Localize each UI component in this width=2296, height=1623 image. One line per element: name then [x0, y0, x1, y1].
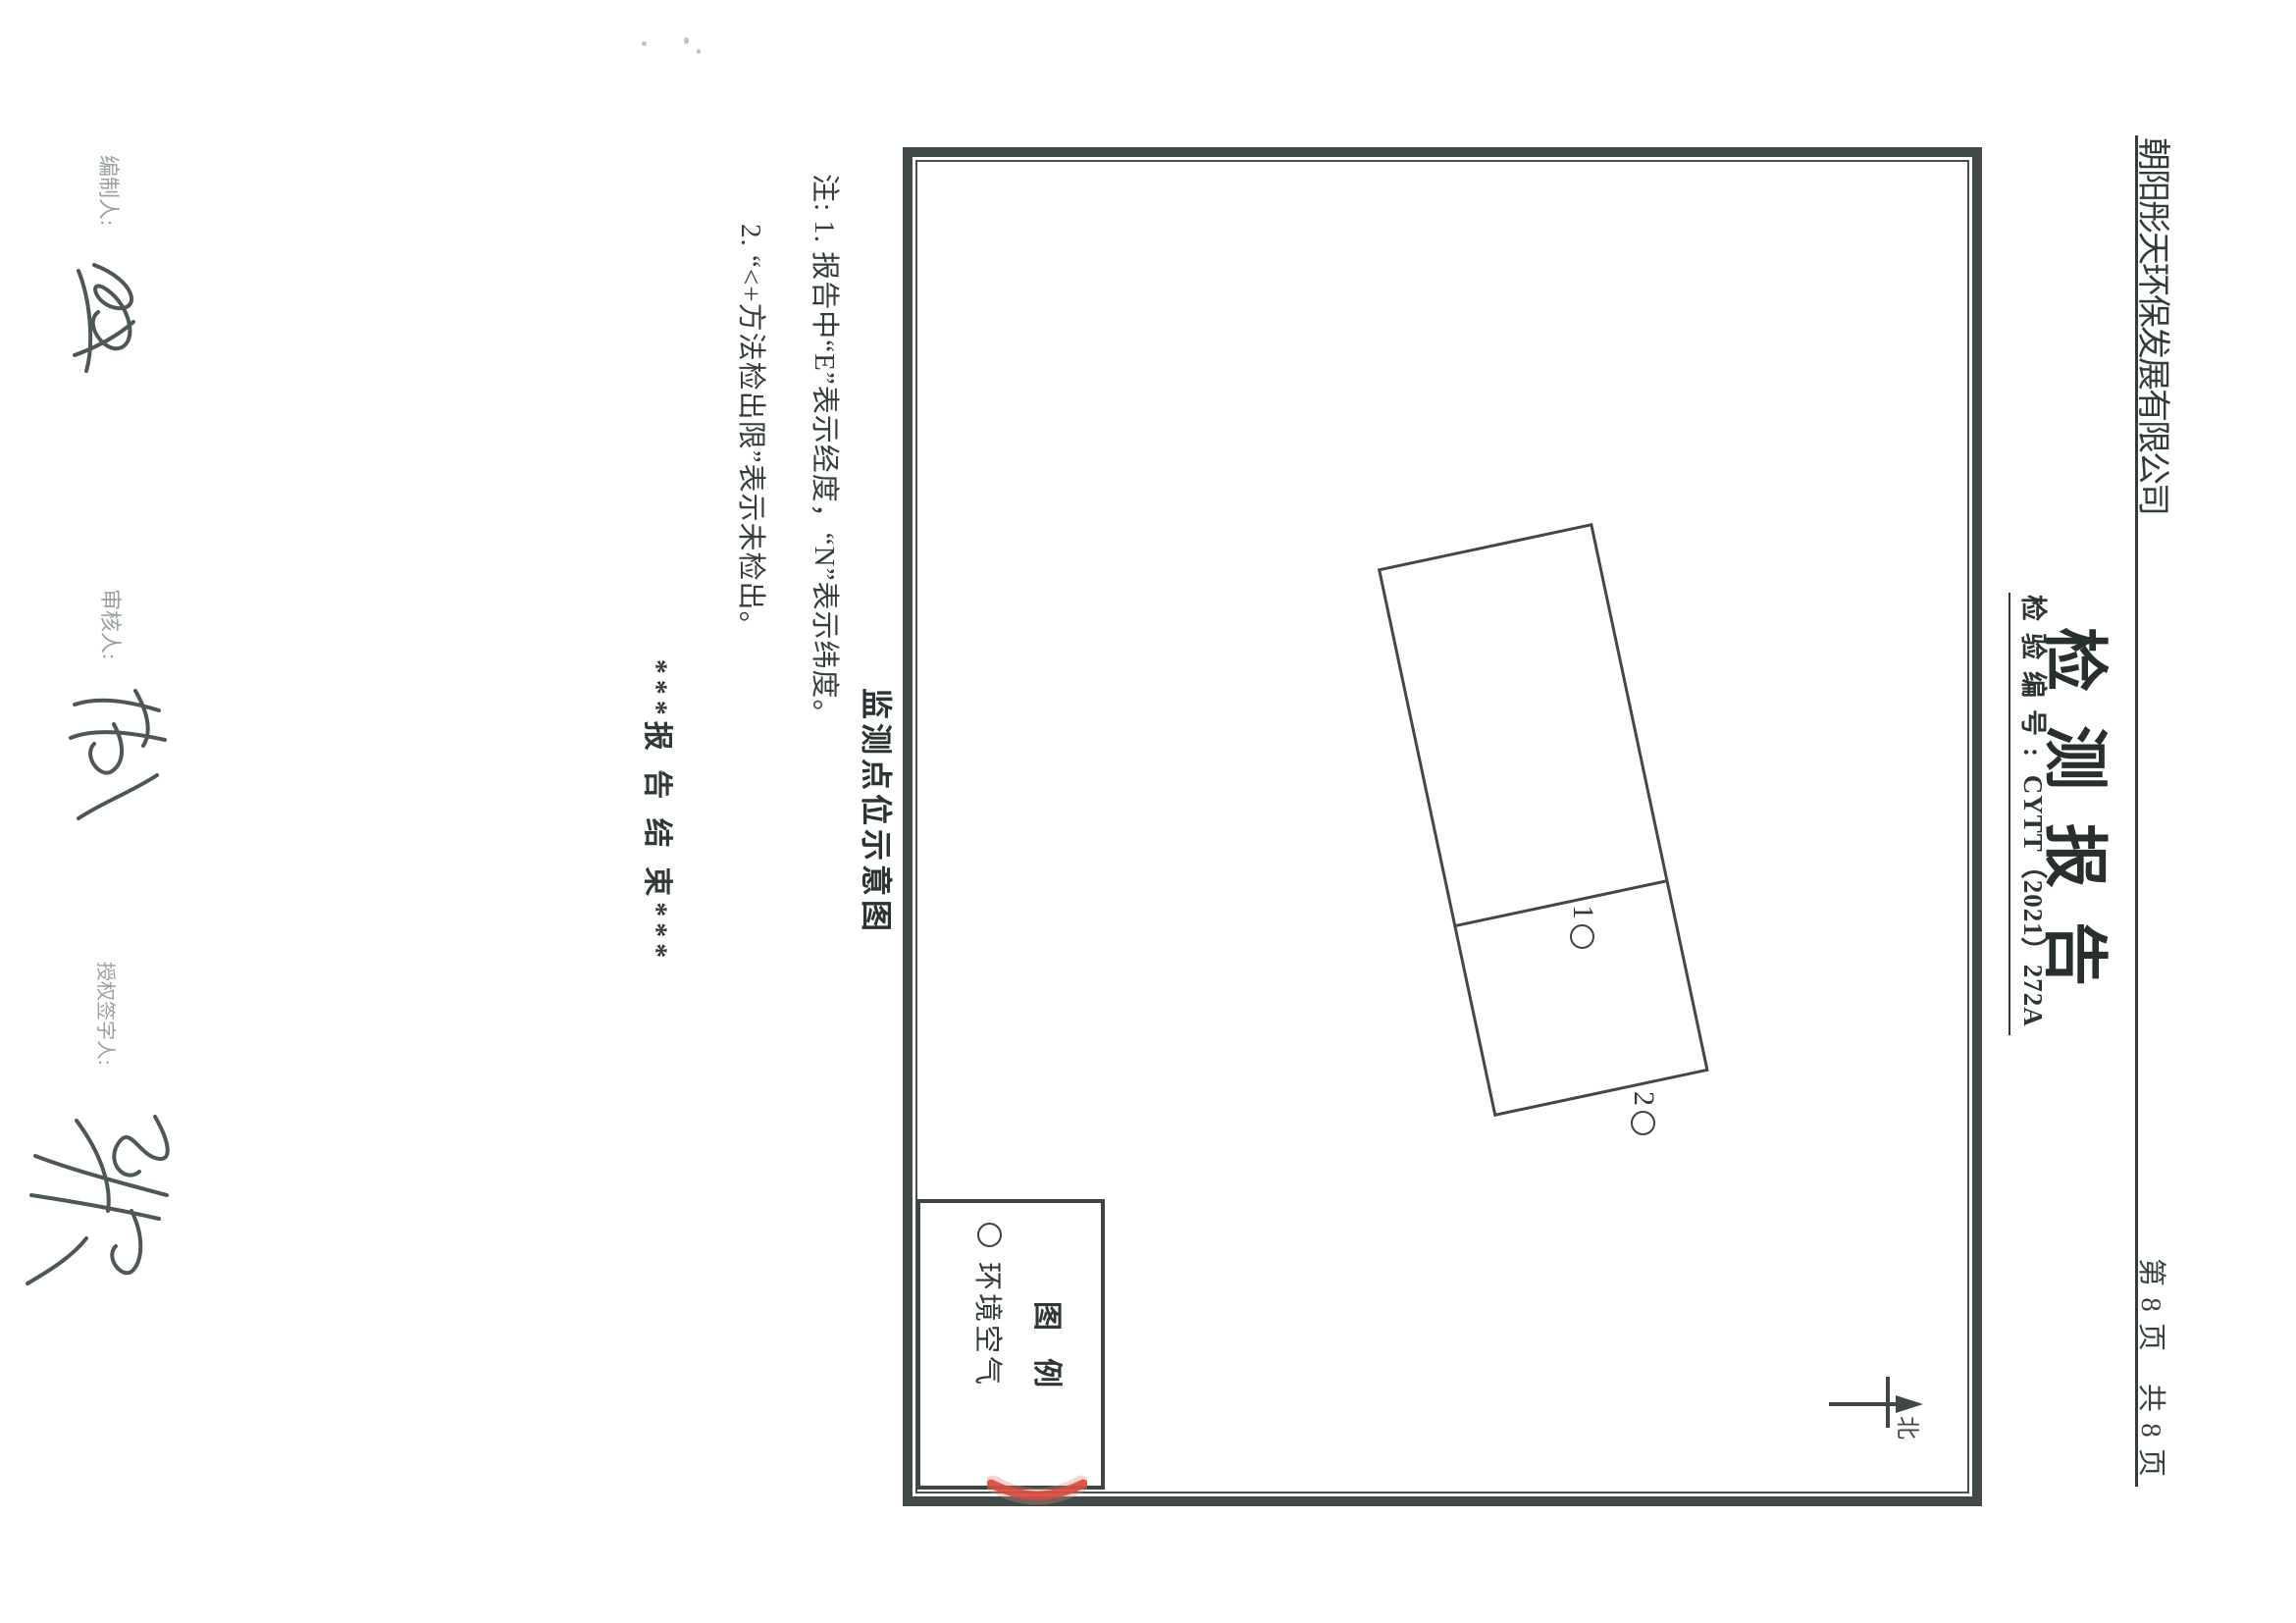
end-of-report-mark: ***报 告 结 束*** [639, 26, 682, 1597]
legend-box: 图例 环境空气 [916, 1199, 1105, 1490]
reviewer-label: 审核人: [96, 589, 128, 659]
scanned-report-screenshot: { "header": { "company": "朝阳彤天环保发展有限公司",… [0, 0, 2296, 1623]
scan-speck [642, 41, 647, 46]
site-diagram-frame: 1 2 北 图例 环境空气 [903, 147, 1982, 1506]
authorized-signatory-label: 授权签字人: [93, 962, 122, 1066]
diagram-caption: 监测点位示意图 [856, 93, 901, 1530]
air-monitoring-point-icon [1632, 1111, 1656, 1135]
company-name: 朝阳彤天环保发展有限公司 [2132, 137, 2180, 514]
monitoring-point-1-number: 1 [1566, 905, 1599, 919]
report-number-label: 检验编号: [2018, 595, 2048, 768]
red-seal-stamp [987, 1474, 1087, 1525]
authorized-signatory-signature [18, 1101, 194, 1297]
air-monitoring-point-icon [978, 1223, 1003, 1247]
scan-speck [684, 37, 689, 44]
preparer-label: 编制人: [94, 155, 126, 226]
monitoring-point-2: 2 [1627, 1091, 1660, 1135]
report-number-value: CYTT（2021）272A [2018, 775, 2048, 1027]
report-page: 朝阳彤天环保发展有限公司 第 8 页 共 8 页 检测报告 检验编号: CYTT… [0, 0, 2296, 1623]
scan-speck [697, 49, 701, 54]
report-number-line: 检验编号: CYTT（2021）272A [2009, 593, 2055, 1035]
header-rule [2135, 135, 2138, 1487]
monitoring-point-2-number: 2 [1627, 1091, 1660, 1106]
building-divider [1456, 880, 1666, 927]
monitoring-point-1: 1 [1566, 905, 1599, 949]
north-label: 北 [1894, 1416, 1920, 1440]
legend-item-ambient-air: 环境空气 [969, 1223, 1011, 1486]
note-line-2: 2. “<+方法检出限”表示未检出。 [733, 224, 774, 640]
preparer-signature [57, 253, 155, 391]
note-line-1: 注: 1. 报告中“E”表示经度，“N”表示纬度。 [807, 174, 848, 728]
air-monitoring-point-icon [1571, 924, 1595, 949]
legend-title: 图例 [1028, 1203, 1071, 1486]
north-arrow-icon: 北 [1825, 1371, 1927, 1453]
reviewer-signature [64, 681, 177, 833]
page-number: 第 8 页 共 8 页 [2133, 1258, 2174, 1479]
legend-item-label: 环境空气 [969, 1262, 1011, 1387]
